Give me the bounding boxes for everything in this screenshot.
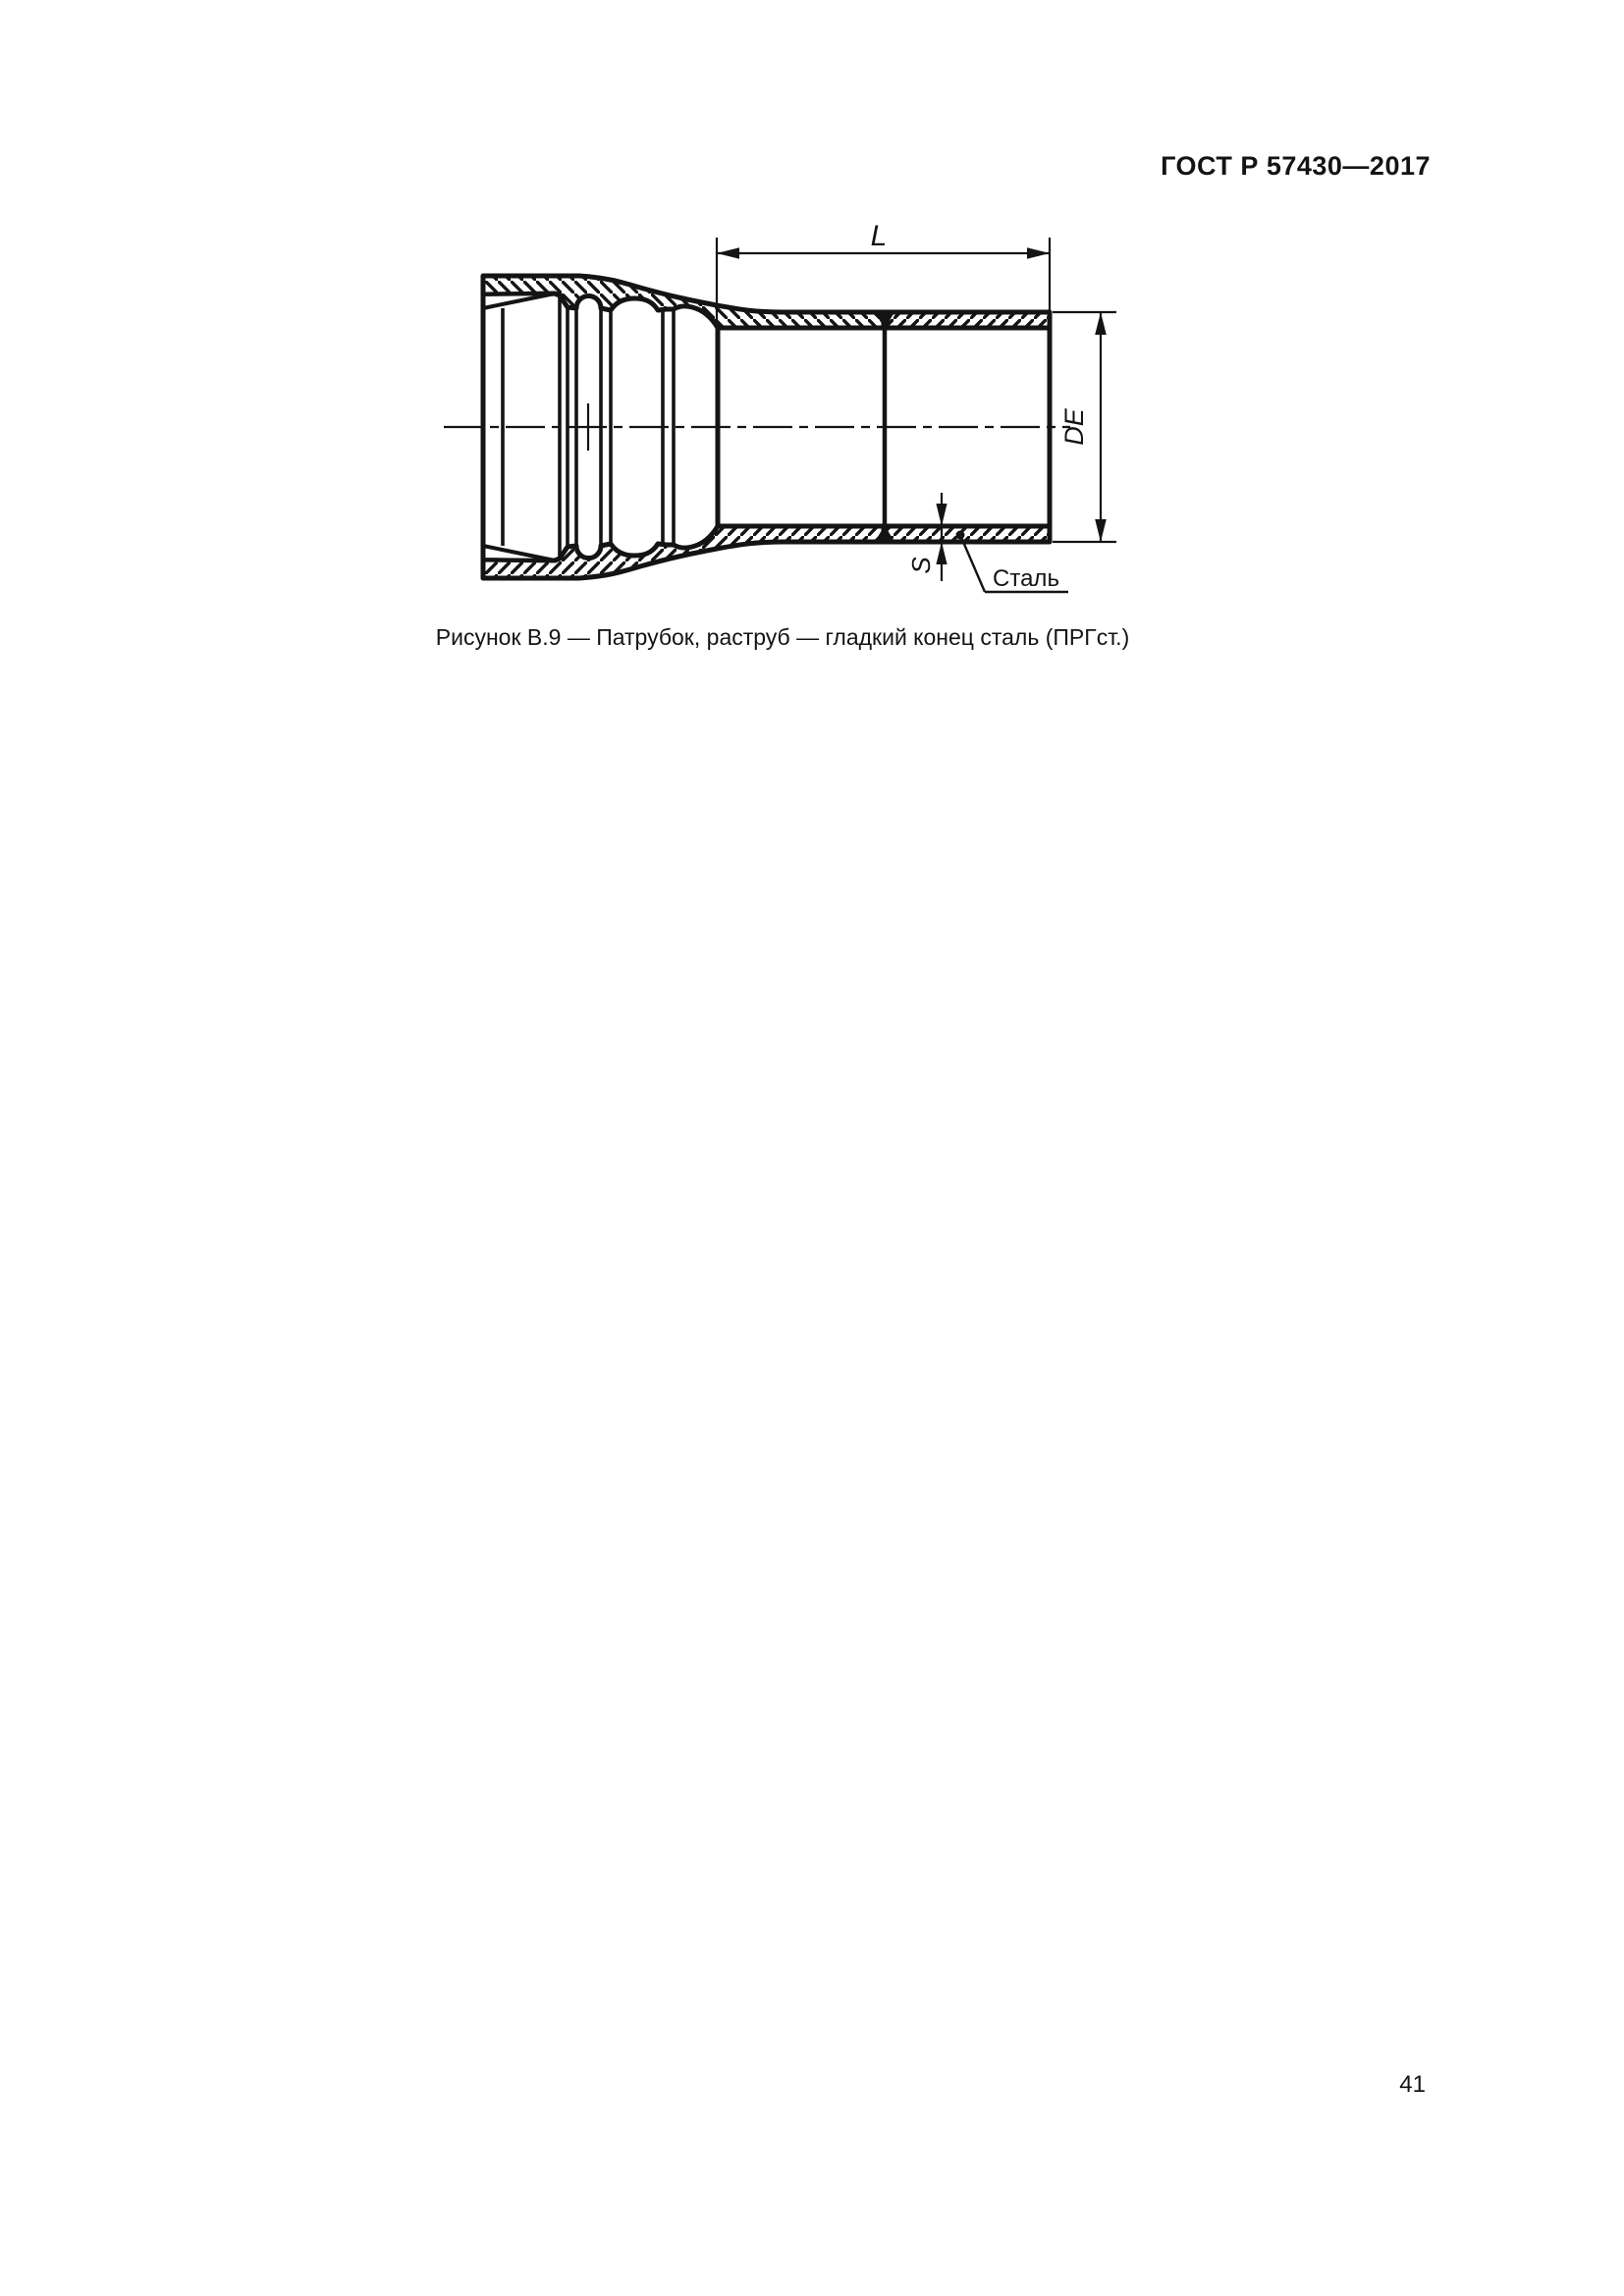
dimension-label-de: DE	[1059, 407, 1089, 445]
document-page: ГОСТ Р 57430—2017	[0, 0, 1624, 2296]
dimension-label-l: L	[871, 220, 888, 252]
pipe-wall-top	[884, 312, 1050, 328]
mouth-chamfer-top	[483, 294, 555, 308]
material-label: Сталь	[993, 565, 1059, 592]
socket-wall-bottom	[483, 526, 884, 578]
page-number: 41	[1399, 2071, 1426, 2099]
socket-wall-top	[483, 276, 884, 328]
figure-drawing: L DE S Сталь	[0, 0, 1624, 2296]
centerline	[444, 403, 1070, 451]
pipe-wall-bottom	[884, 526, 1050, 542]
figure-caption: Рисунок В.9 — Патрубок, раструб — гладки…	[390, 624, 1175, 651]
mouth-chamfer-bottom	[483, 546, 555, 561]
dimension-label-s: S	[906, 557, 936, 574]
